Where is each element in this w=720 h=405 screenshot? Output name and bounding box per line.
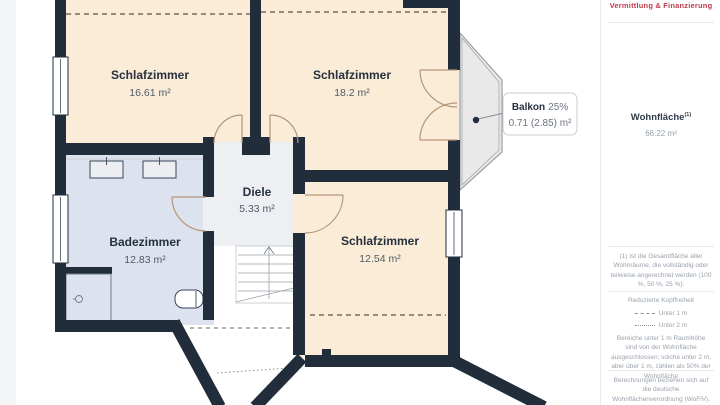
room-area-badezimmer: 12.83 m²	[124, 254, 166, 266]
room-label-diele: Diele	[243, 185, 272, 199]
doorway-br-threshold	[293, 194, 305, 233]
wall	[55, 0, 66, 332]
divider	[608, 370, 714, 371]
room-area-diele: 5.33 m²	[239, 203, 275, 215]
legend-item-under-1m: Unter 1 m	[601, 310, 720, 317]
balkon-area: 0.71 (2.85) m²	[509, 118, 572, 129]
wall	[403, 0, 460, 8]
wall-diagonal	[454, 361, 544, 405]
dashed-line-sample-icon	[635, 313, 655, 314]
wall-diagonal	[174, 322, 220, 405]
room-label-badezimmer: Badezimmer	[109, 235, 181, 249]
toilet-icon	[175, 290, 203, 308]
wall	[322, 349, 331, 355]
under-2m-dotted-line	[217, 368, 289, 373]
stairs	[236, 246, 302, 303]
balcony	[460, 33, 502, 190]
floorplan-svg: Schlafzimmer 16.61 m² Schlafzimmer 18.2 …	[0, 0, 600, 405]
wall	[448, 0, 460, 70]
wall	[250, 0, 261, 143]
dotted-line-sample-icon	[635, 325, 655, 326]
legend-title: Reduzierte Kopffreiheit	[601, 296, 720, 305]
room-area-schlafzimmer-1: 16.61 m²	[129, 87, 171, 99]
legend-note: Bereiche unter 1 m Raumhöhe sind von der…	[601, 334, 720, 381]
balkon-title: Balkon25%	[512, 102, 568, 113]
shower-partition-wall	[66, 267, 112, 274]
page-edge-strip	[0, 0, 16, 405]
callout-dot-icon	[473, 117, 479, 123]
info-sidebar: Vermittlung & Finanzierung Wohnfläche(1)…	[600, 0, 720, 405]
doorway-bad-threshold	[203, 197, 214, 231]
divider	[608, 246, 714, 247]
floorplan-viewer: Schlafzimmer 16.61 m² Schlafzimmer 18.2 …	[0, 0, 720, 405]
balcony-deck	[460, 33, 502, 190]
room-label-schlafzimmer-1: Schlafzimmer	[111, 68, 189, 82]
wall	[305, 355, 460, 367]
shower-icon	[66, 274, 111, 322]
room-area-schlafzimmer-2: 18.2 m²	[334, 87, 370, 99]
wall	[55, 320, 180, 332]
room-area-schlafzimmer-3: 12.54 m²	[359, 253, 401, 265]
disclaimer-text: Berechnungen beziehen sich auf die deuts…	[601, 376, 720, 405]
legend-item-label: Unter 2 m	[659, 322, 688, 329]
wall	[203, 231, 214, 320]
wall	[203, 155, 214, 197]
room-schlafzimmer-3-floor	[300, 176, 452, 361]
wall	[203, 137, 214, 155]
wall	[298, 170, 460, 182]
wohnflaeche-heading: Wohnfläche(1)	[601, 112, 720, 123]
wohnflaeche-value: 66.22 m²	[601, 129, 720, 138]
wohnflaeche-footnote-ref: (1)	[684, 112, 691, 118]
wall	[448, 140, 460, 182]
divider	[608, 291, 714, 292]
agency-logo-text: Vermittlung & Finanzierung	[601, 1, 720, 10]
floorplan-canvas: Schlafzimmer 16.61 m² Schlafzimmer 18.2 …	[0, 0, 600, 405]
footnote-text: (1) Ist die Gesamtfläche aller Wohnräume…	[601, 252, 720, 290]
wall	[242, 137, 270, 155]
divider	[608, 22, 714, 23]
room-label-schlafzimmer-2: Schlafzimmer	[313, 68, 391, 82]
legend-item-label: Unter 1 m	[659, 310, 688, 317]
wall	[293, 137, 305, 155]
room-label-schlafzimmer-3: Schlafzimmer	[341, 234, 419, 248]
legend-item-under-2m: Unter 2 m	[601, 322, 720, 329]
wall-diagonal	[255, 358, 302, 405]
wohnflaeche-label: Wohnfläche	[631, 112, 685, 123]
wall	[55, 143, 214, 155]
wall	[293, 233, 305, 355]
